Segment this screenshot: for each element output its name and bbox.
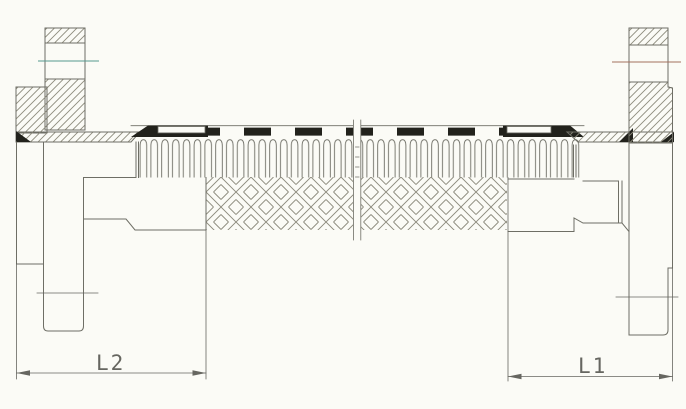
center-break [353, 119, 360, 240]
right-ferrule-window [507, 127, 551, 133]
left-ferrule-window [158, 127, 205, 133]
l1-label: L1 [578, 354, 607, 378]
technical-drawing-flexible-hose: L2 L1 [0, 0, 686, 404]
drawing-svg: L2 L1 [0, 0, 686, 404]
l2-label: L2 [96, 351, 125, 375]
left-stub-collar [16, 87, 47, 133]
left-pipe-wall-section [16, 131, 140, 142]
